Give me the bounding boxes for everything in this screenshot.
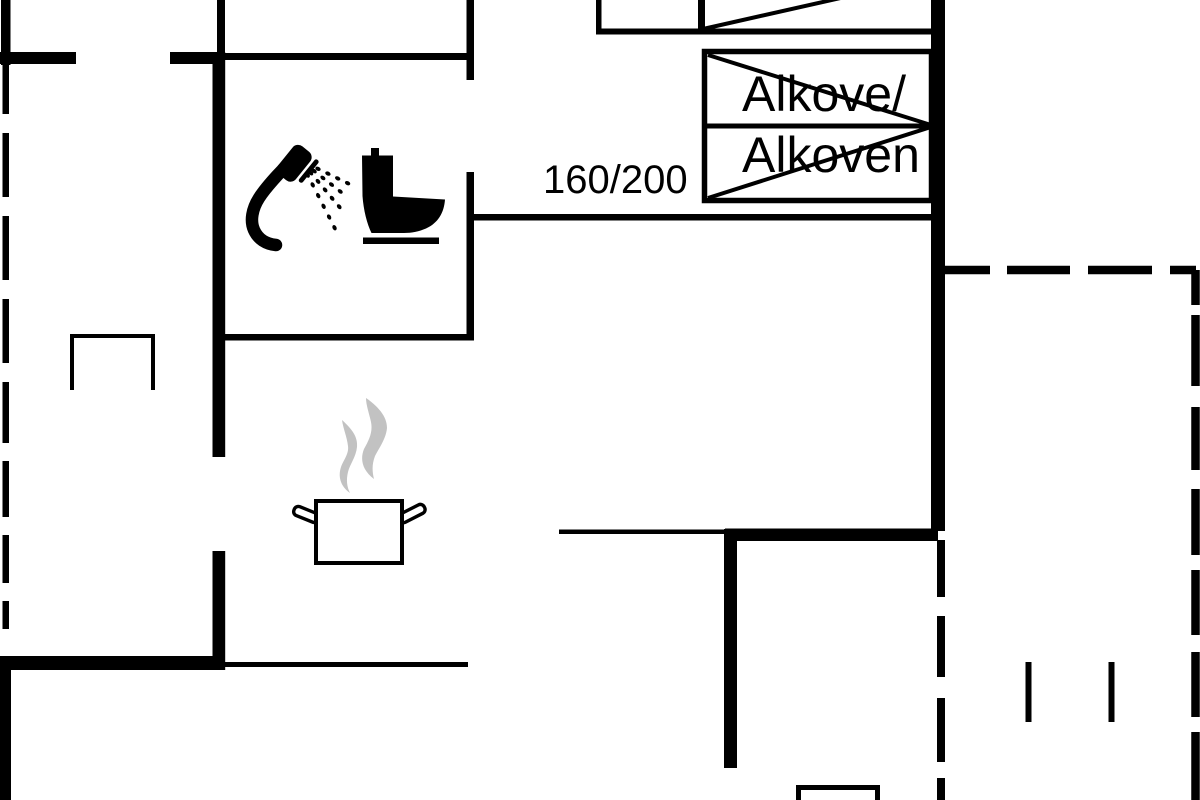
svg-text:Alkove/: Alkove/ — [742, 66, 906, 122]
svg-text:160/200: 160/200 — [543, 158, 688, 202]
svg-text:Alkoven: Alkoven — [742, 127, 920, 183]
